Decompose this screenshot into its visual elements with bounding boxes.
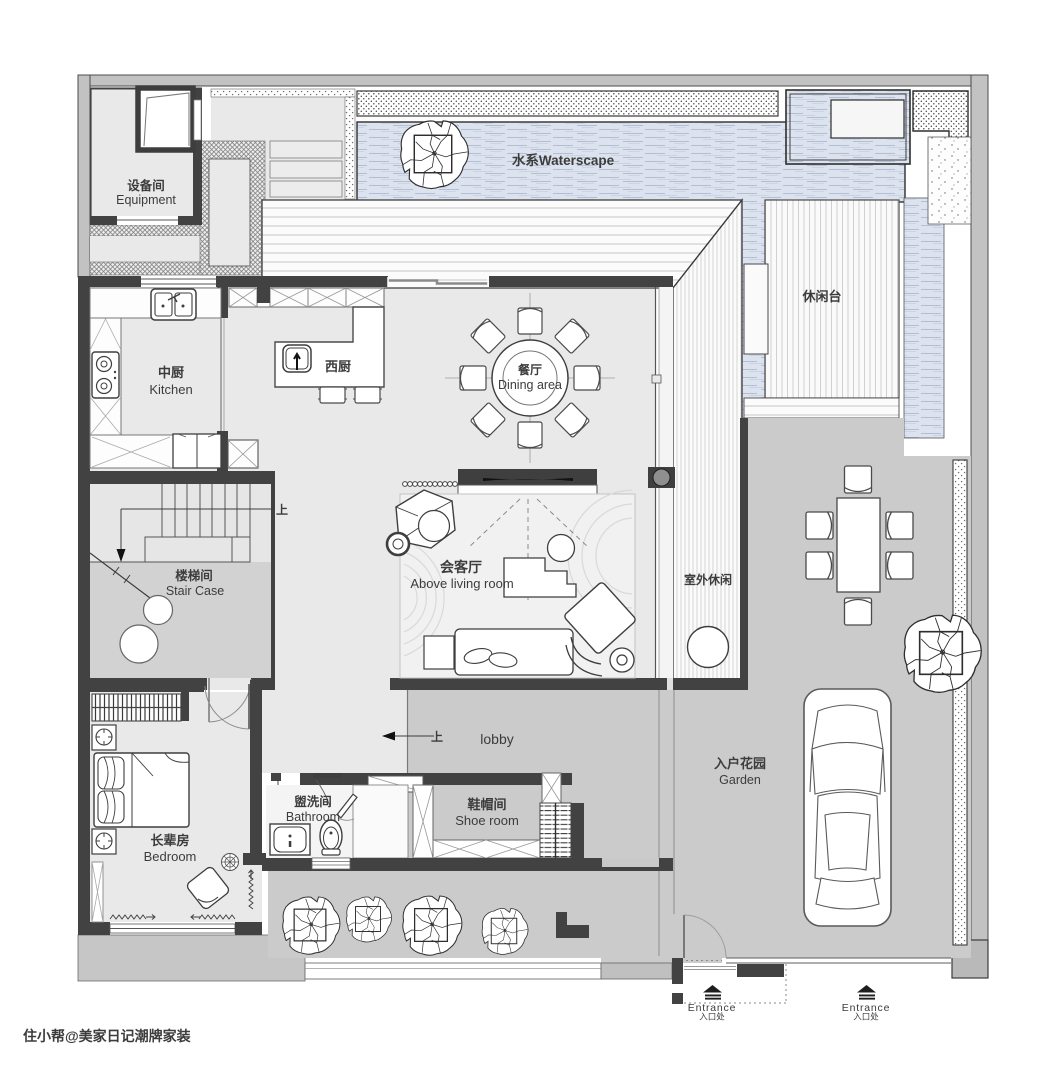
svg-text:入口处: 入口处 [853,1012,879,1022]
svg-text:入口处: 入口处 [699,1012,725,1022]
svg-text:楼梯间: 楼梯间 [175,568,213,583]
svg-text:餐厅: 餐厅 [518,362,542,377]
svg-text:Equipment: Equipment [116,193,176,207]
svg-text:休闲台: 休闲台 [801,289,841,304]
svg-text:水系Waterscape: 水系Waterscape [512,152,615,168]
svg-text:Bathroom: Bathroom [286,810,340,824]
svg-text:Dining area: Dining area [498,378,562,392]
svg-text:盥洗间: 盥洗间 [294,794,332,809]
svg-text:Garden: Garden [719,773,761,787]
svg-text:西厨: 西厨 [325,359,351,374]
svg-text:lobby: lobby [480,731,513,747]
svg-text:Bedroom: Bedroom [144,849,197,864]
svg-text:Shoe room: Shoe room [455,813,519,828]
svg-text:住小帮@美家日记潮牌家装: 住小帮@美家日记潮牌家装 [23,1028,192,1044]
svg-text:Kitchen: Kitchen [149,382,192,397]
svg-text:设备间: 设备间 [127,178,165,193]
svg-text:Stair Case: Stair Case [166,584,224,598]
svg-text:会客厅: 会客厅 [440,559,482,575]
svg-text:鞋帽间: 鞋帽间 [467,797,506,812]
svg-text:上: 上 [276,502,288,517]
svg-text:上: 上 [431,729,443,744]
svg-text:入户花园: 入户花园 [714,756,766,771]
svg-text:中厨: 中厨 [158,365,184,380]
svg-text:Above living room: Above living room [410,576,513,591]
svg-text:长辈房: 长辈房 [150,833,189,848]
svg-text:室外休闲: 室外休闲 [684,572,732,587]
